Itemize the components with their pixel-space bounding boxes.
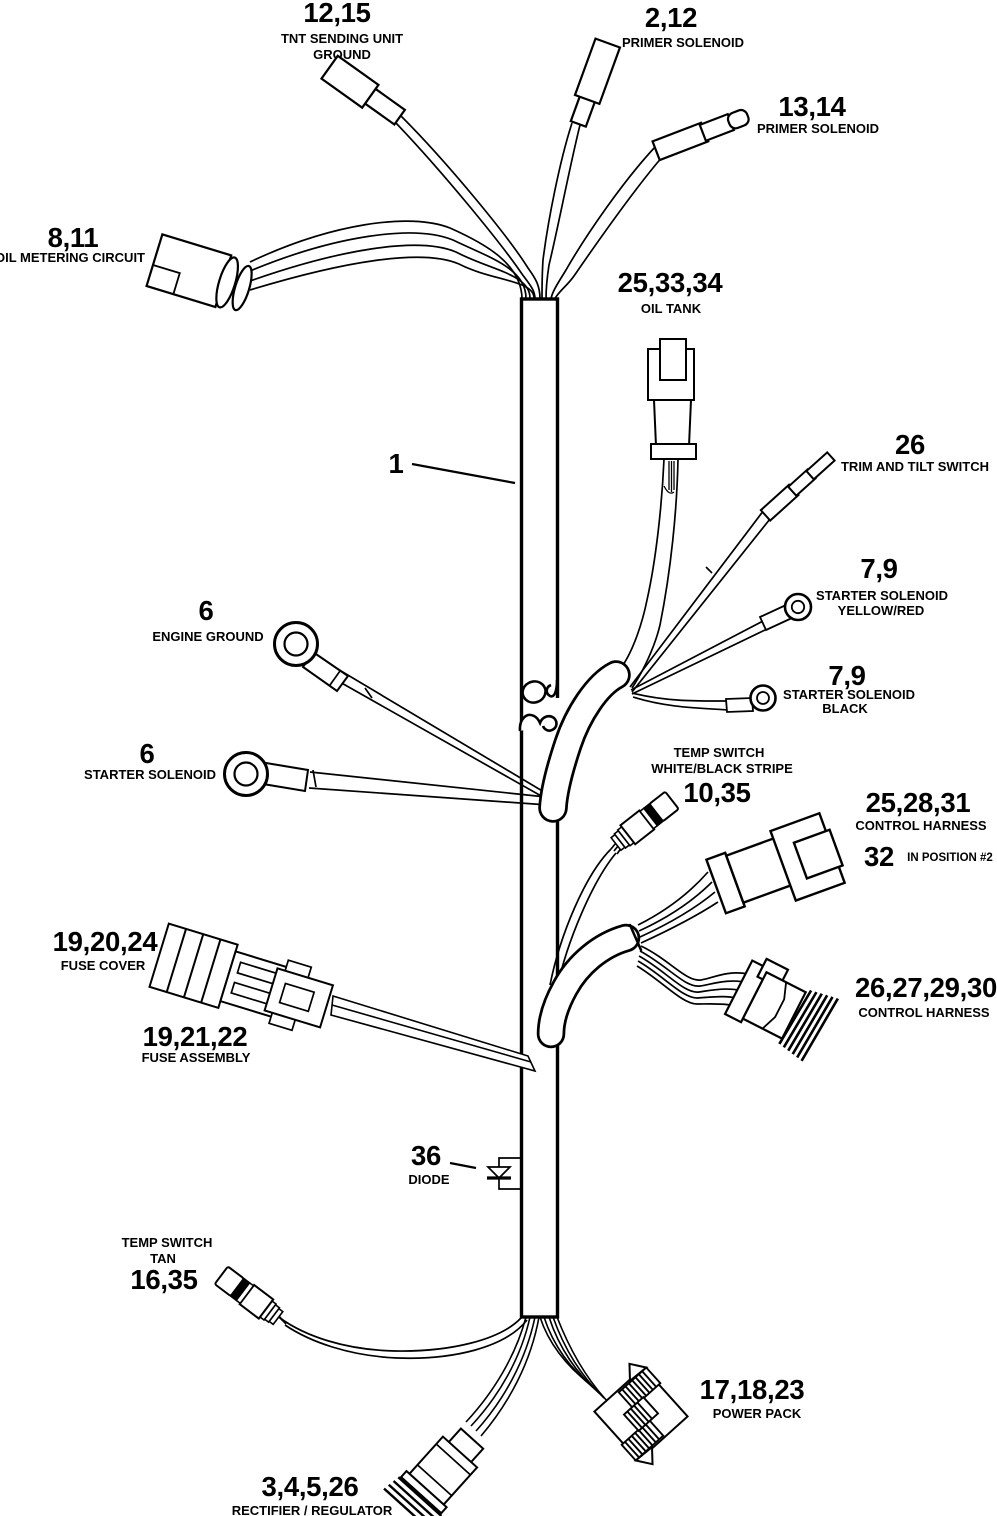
svg-text:STARTER SOLENOID: STARTER SOLENOID	[84, 767, 216, 782]
svg-text:26: 26	[895, 429, 925, 460]
svg-text:25,33,34: 25,33,34	[618, 267, 724, 298]
svg-text:25,28,31: 25,28,31	[866, 787, 971, 818]
svg-text:6: 6	[140, 738, 155, 769]
svg-text:CONTROL HARNESS: CONTROL HARNESS	[858, 1005, 990, 1020]
svg-text:TEMP SWITCH: TEMP SWITCH	[122, 1235, 213, 1250]
svg-text:32: 32	[864, 841, 894, 872]
svg-text:17,18,23: 17,18,23	[700, 1374, 805, 1405]
svg-text:RECTIFIER / REGULATOR: RECTIFIER / REGULATOR	[232, 1503, 393, 1516]
svg-text:PRIMER SOLENOID: PRIMER SOLENOID	[622, 35, 744, 50]
svg-text:POWER PACK: POWER PACK	[713, 1406, 802, 1421]
svg-text:BLACK: BLACK	[822, 701, 868, 716]
svg-text:DIODE: DIODE	[408, 1172, 450, 1187]
svg-text:CONTROL HARNESS: CONTROL HARNESS	[855, 818, 987, 833]
svg-text:ENGINE GROUND: ENGINE GROUND	[152, 629, 263, 644]
svg-text:7,9: 7,9	[860, 553, 897, 584]
svg-text:12,15: 12,15	[303, 0, 370, 28]
svg-text:13,14: 13,14	[778, 91, 846, 122]
svg-text:2,12: 2,12	[645, 2, 697, 33]
svg-text:PRIMER SOLENOID: PRIMER SOLENOID	[757, 121, 879, 136]
svg-text:16,35: 16,35	[130, 1264, 197, 1295]
svg-text:IN POSITION #2: IN POSITION #2	[907, 852, 993, 864]
svg-text:FUSE ASSEMBLY: FUSE ASSEMBLY	[142, 1050, 251, 1065]
svg-text:STARTER SOLENOID: STARTER SOLENOID	[816, 588, 948, 603]
svg-text:FUSE COVER: FUSE COVER	[61, 958, 146, 973]
svg-text:19,20,24: 19,20,24	[53, 926, 159, 957]
svg-text:8,11: 8,11	[48, 222, 99, 253]
svg-text:TNT SENDING UNIT: TNT SENDING UNIT	[281, 31, 403, 46]
svg-text:36: 36	[411, 1140, 441, 1171]
svg-text:6: 6	[199, 595, 214, 626]
svg-text:19,21,22: 19,21,22	[143, 1021, 248, 1052]
svg-text:OIL METERING CIRCUIT: OIL METERING CIRCUIT	[0, 250, 145, 265]
svg-text:WHITE/BLACK STRIPE: WHITE/BLACK STRIPE	[651, 761, 793, 776]
svg-text:TEMP SWITCH: TEMP SWITCH	[674, 745, 765, 760]
svg-text:TRIM AND TILT SWITCH: TRIM AND TILT SWITCH	[841, 459, 989, 474]
svg-text:10,35: 10,35	[683, 777, 750, 808]
svg-text:STARTER SOLENOID: STARTER SOLENOID	[783, 687, 915, 702]
svg-text:1: 1	[389, 448, 404, 479]
svg-text:3,4,5,26: 3,4,5,26	[262, 1471, 359, 1502]
svg-text:YELLOW/RED: YELLOW/RED	[838, 603, 925, 618]
svg-text:OIL TANK: OIL TANK	[641, 301, 702, 316]
svg-text:26,27,29,30: 26,27,29,30	[855, 972, 997, 1003]
